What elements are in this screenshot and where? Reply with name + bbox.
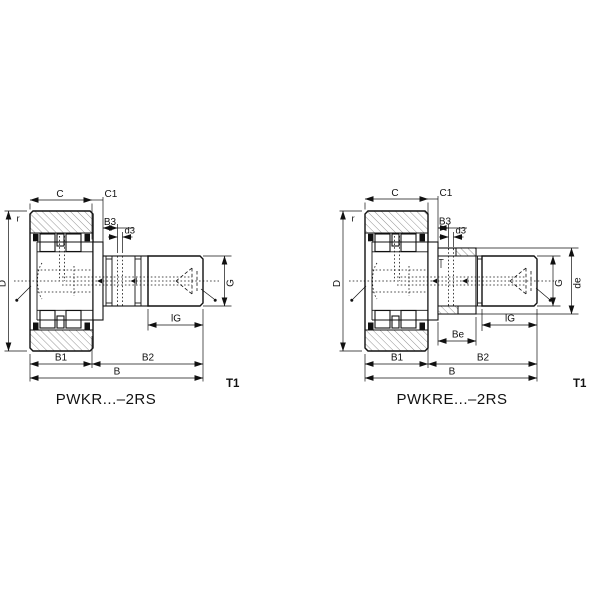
dim-label-be: Be [452, 330, 465, 341]
pwkr-geometry [14, 211, 219, 351]
figure-note-t1: T1 [573, 378, 587, 390]
dim-label-lg: lG [171, 314, 181, 325]
dim-label-lg: lG [505, 314, 515, 325]
dim-label-b3: B3 [104, 217, 117, 228]
dim-label-b2: B2 [477, 353, 490, 364]
figure-pwkre: C C1 B3 d3 r D G de lG Be B1 B2 B T1 PWK… [332, 188, 587, 408]
dim-label-b: B [449, 367, 456, 378]
dim-label-d: D [332, 280, 343, 287]
dim-label-c: C [391, 188, 398, 199]
dim-label-b3: B3 [439, 217, 452, 228]
figure-title-pwkre: PWKRE...–2RS [396, 391, 507, 408]
technical-drawing-canvas: C C1 B3 d3 r D G lG B1 B2 B T1 PWKR...–2… [0, 0, 600, 600]
dim-label-g: G [554, 279, 565, 287]
dim-label-c: C [56, 189, 63, 200]
figure-title-pwkr: PWKR...–2RS [56, 391, 157, 408]
dim-label-de: de [573, 277, 584, 289]
dim-label-d3: d3 [125, 226, 136, 237]
dim-label-r: r [352, 214, 355, 225]
dim-label-b: B [114, 367, 121, 378]
dim-label-b1: B1 [55, 353, 68, 364]
dim-label-g: G [226, 279, 237, 287]
dim-label-c1: C1 [105, 189, 118, 200]
dim-label-c1: C1 [440, 188, 453, 199]
dim-label-d3: d3 [456, 226, 467, 237]
dim-label-b2: B2 [142, 353, 155, 364]
figure-note-t1: T1 [226, 378, 240, 390]
dim-label-b1: B1 [391, 353, 404, 364]
figure-pwkr: C C1 B3 d3 r D G lG B1 B2 B T1 PWKR...–2… [0, 189, 240, 408]
drawing-page: C C1 B3 d3 r D G lG B1 B2 B T1 PWKR...–2… [0, 0, 600, 600]
dim-label-d: D [0, 280, 9, 287]
dim-label-r: r [17, 214, 20, 225]
